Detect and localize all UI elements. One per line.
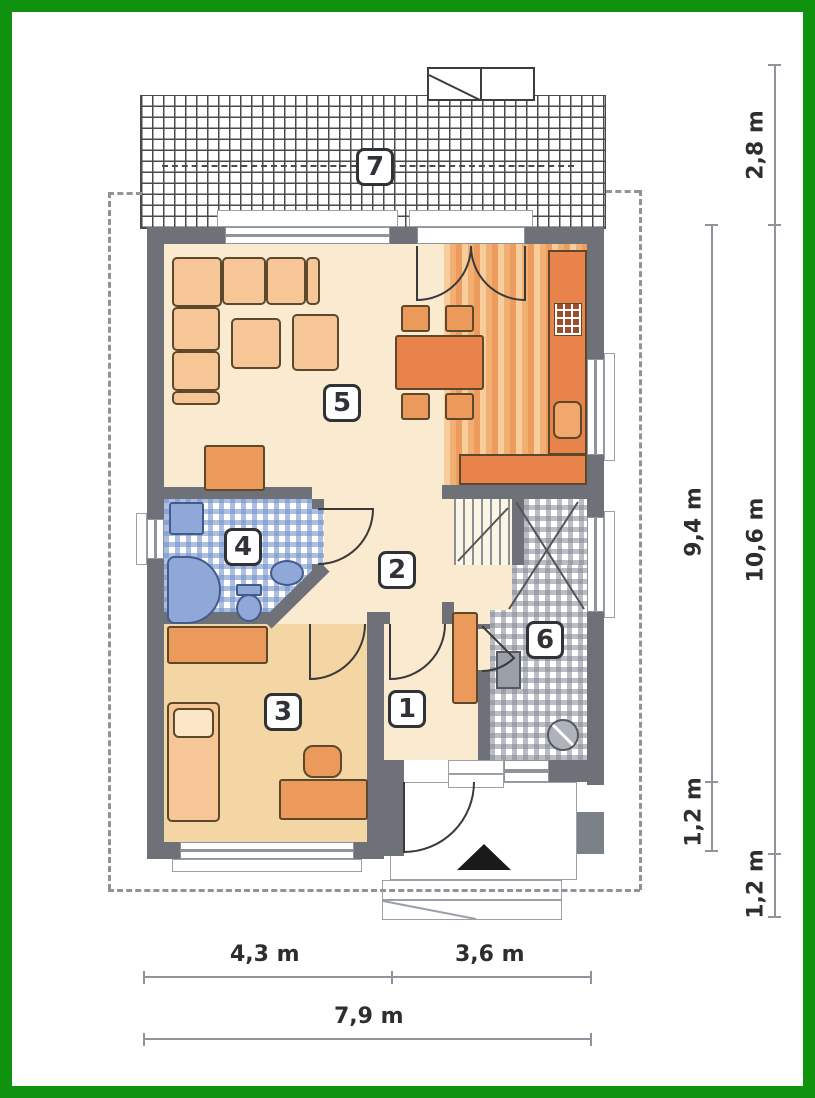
sill-kitchen xyxy=(604,353,615,461)
sofa-cushion xyxy=(172,351,220,391)
sofa-cushion xyxy=(222,257,266,305)
entrance-step xyxy=(448,760,504,788)
toilet-bowl xyxy=(236,594,262,622)
terrace-double-door-opening xyxy=(417,227,525,244)
wall xyxy=(312,499,324,509)
wall xyxy=(587,612,604,785)
dim-label-7-9m: 7,9 m xyxy=(334,1004,404,1029)
boundary-dashed-right xyxy=(639,190,642,890)
floor-plan-canvas: 7 5 4 2 3 1 6 2,8 m 9,4 m 10,6 m 1,2 m 1… xyxy=(0,0,815,1098)
room-number: 3 xyxy=(274,697,292,727)
sill-utility xyxy=(604,511,615,618)
window-bathroom-left xyxy=(147,519,164,559)
room-number: 1 xyxy=(398,694,416,724)
dining-chair xyxy=(445,305,474,332)
room-number: 7 xyxy=(366,152,384,182)
dim-tick xyxy=(391,971,393,984)
dim-tick xyxy=(143,971,145,984)
sofa-cushion xyxy=(172,307,220,351)
room-number: 2 xyxy=(388,555,406,585)
sofa-armrest xyxy=(306,257,320,305)
dimension-line-right-outer xyxy=(774,65,776,917)
sill-bedroom xyxy=(172,859,362,872)
dim-tick xyxy=(590,971,592,984)
dim-label-2-8m: 2,8 m xyxy=(744,110,769,180)
dining-chair xyxy=(445,393,474,420)
room-label-5: 5 xyxy=(323,384,361,422)
wall xyxy=(587,244,604,359)
window-living-top xyxy=(225,227,390,244)
wall xyxy=(147,842,180,859)
kitchen-hob xyxy=(554,303,582,336)
porch-pier-right xyxy=(577,812,604,854)
wall xyxy=(147,559,164,859)
wall xyxy=(147,227,225,244)
porch-floor xyxy=(390,782,577,880)
porch-steps xyxy=(382,880,562,920)
dim-label-10-6m: 10,6 m xyxy=(744,498,769,583)
wall xyxy=(147,244,164,519)
sofa-armrest xyxy=(172,391,220,405)
kitchen-sink xyxy=(553,401,582,439)
wall xyxy=(390,227,417,244)
wall xyxy=(478,670,490,760)
dimension-line-bottom-upper xyxy=(144,976,592,978)
stair-treads xyxy=(454,499,512,565)
window-utility-bottom xyxy=(504,760,549,782)
bed-pillow xyxy=(173,708,214,738)
bedroom-wardrobe xyxy=(167,626,268,664)
room-number: 4 xyxy=(234,532,252,562)
kitchen-counter-bottom xyxy=(459,454,587,485)
wall xyxy=(587,455,604,517)
dimension-line-right-inner xyxy=(711,225,713,852)
armchair xyxy=(292,314,339,371)
dim-label-1-2m-outer: 1,2 m xyxy=(744,849,769,919)
bathroom-sink xyxy=(270,560,304,586)
dimension-line-bottom-lower xyxy=(144,1038,592,1040)
sofa-corner-seat xyxy=(172,257,222,307)
wall xyxy=(442,485,454,499)
dining-chair xyxy=(401,393,430,420)
boundary-dashed-top-right xyxy=(606,190,640,193)
sill-terrace-door xyxy=(409,210,533,227)
sill-living xyxy=(217,210,398,227)
boundary-dashed-top-left xyxy=(108,192,142,195)
dim-tick xyxy=(705,224,718,226)
dim-tick xyxy=(590,1033,592,1046)
wall xyxy=(454,485,587,499)
dim-tick xyxy=(143,1033,145,1046)
washing-machine xyxy=(496,651,521,689)
window-kitchen-right xyxy=(587,359,604,455)
floor-utility-top xyxy=(524,499,587,565)
hall-wardrobe xyxy=(452,612,478,704)
sideboard xyxy=(204,445,265,491)
wall xyxy=(525,227,604,244)
dim-label-1-2m-inner: 1,2 m xyxy=(682,777,707,847)
desk-chair xyxy=(303,745,342,778)
wall xyxy=(512,499,524,565)
wall xyxy=(367,624,384,859)
room-label-3: 3 xyxy=(264,693,302,731)
dim-tick xyxy=(705,850,718,852)
sofa-cushion xyxy=(266,257,306,305)
wall xyxy=(384,760,404,782)
dim-label-9-4m: 9,4 m xyxy=(682,487,707,557)
wall xyxy=(367,612,390,624)
boundary-dashed-left xyxy=(108,192,111,890)
dining-table xyxy=(395,335,484,390)
coffee-table xyxy=(231,318,281,369)
dim-tick xyxy=(768,853,781,855)
dim-tick xyxy=(768,916,781,918)
desk xyxy=(279,779,368,820)
stair-landing xyxy=(454,565,512,610)
room-label-2: 2 xyxy=(378,551,416,589)
room-label-4: 4 xyxy=(224,528,262,566)
room-label-7: 7 xyxy=(356,148,394,186)
dining-chair xyxy=(401,305,430,332)
window-bedroom-bottom xyxy=(180,842,354,859)
dim-tick xyxy=(768,64,781,66)
window-utility-right xyxy=(587,517,604,612)
wall xyxy=(549,760,587,782)
chimney-divider xyxy=(480,69,482,99)
bathroom-cabinet xyxy=(169,502,204,535)
room-label-6: 6 xyxy=(526,621,564,659)
wall xyxy=(312,564,324,572)
boundary-dashed-bottom xyxy=(108,889,640,892)
room-label-1: 1 xyxy=(388,690,426,728)
room-number: 6 xyxy=(536,625,554,655)
dim-tick xyxy=(705,781,718,783)
room-number: 5 xyxy=(333,388,351,418)
sill-bathroom xyxy=(136,513,147,565)
dim-tick xyxy=(768,224,781,226)
dim-label-4-3m: 4,3 m xyxy=(230,942,300,967)
wall xyxy=(478,624,490,629)
dim-label-3-6m: 3,6 m xyxy=(455,942,525,967)
